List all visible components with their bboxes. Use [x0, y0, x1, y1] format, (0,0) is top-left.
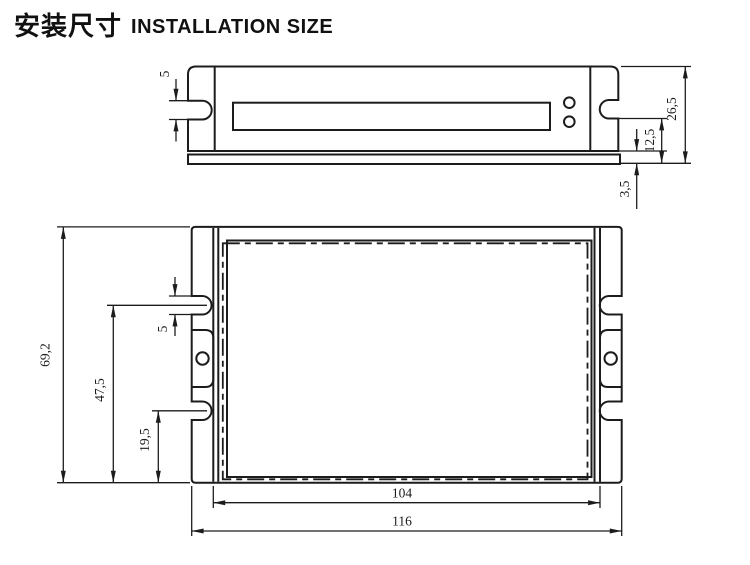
installation-size-page: 安装尺寸INSTALLATION SIZE 5 — [0, 0, 750, 565]
dim-side-mount-step: 12,5 — [619, 119, 667, 164]
dimension-label: 19,5 — [137, 428, 152, 452]
dimension-label: 5 — [155, 325, 170, 332]
installation-drawing: 5 26,5 12,5 3,5 — [0, 0, 750, 565]
side-view — [188, 67, 620, 165]
side-view-outline — [188, 67, 618, 152]
top-view-outline — [192, 227, 622, 483]
dim-top-slot-span: 47,5 — [92, 305, 207, 482]
right-mounting-tab — [600, 330, 622, 387]
left-mounting-tab — [192, 330, 214, 387]
led-indicator-hole-top — [564, 97, 575, 108]
dim-top-lower-slot-offset: 19,5 — [137, 411, 207, 483]
side-view-base-plate — [188, 155, 620, 165]
side-view-terminal-slot — [233, 103, 550, 130]
dimension-label: 5 — [157, 70, 172, 77]
dim-side-slot-width: 5 — [157, 70, 190, 141]
dim-top-mount-span: 104 — [213, 486, 600, 509]
top-view-cover-plate — [227, 241, 592, 478]
dimension-label: 104 — [392, 486, 413, 501]
dimension-label: 26,5 — [664, 97, 679, 121]
dimension-label: 47,5 — [92, 378, 107, 402]
top-view — [192, 227, 622, 483]
dimension-label: 3,5 — [617, 180, 632, 197]
dim-top-slot-width: 5 — [155, 277, 191, 336]
dimension-label: 69,2 — [38, 343, 53, 367]
dimension-label: 12,5 — [642, 128, 657, 152]
hidden-base-edge-dashed — [223, 243, 588, 479]
right-mounting-hole — [605, 352, 617, 364]
left-mounting-hole — [196, 352, 208, 364]
dimension-label: 116 — [392, 514, 412, 529]
led-indicator-hole-bottom — [564, 116, 575, 127]
